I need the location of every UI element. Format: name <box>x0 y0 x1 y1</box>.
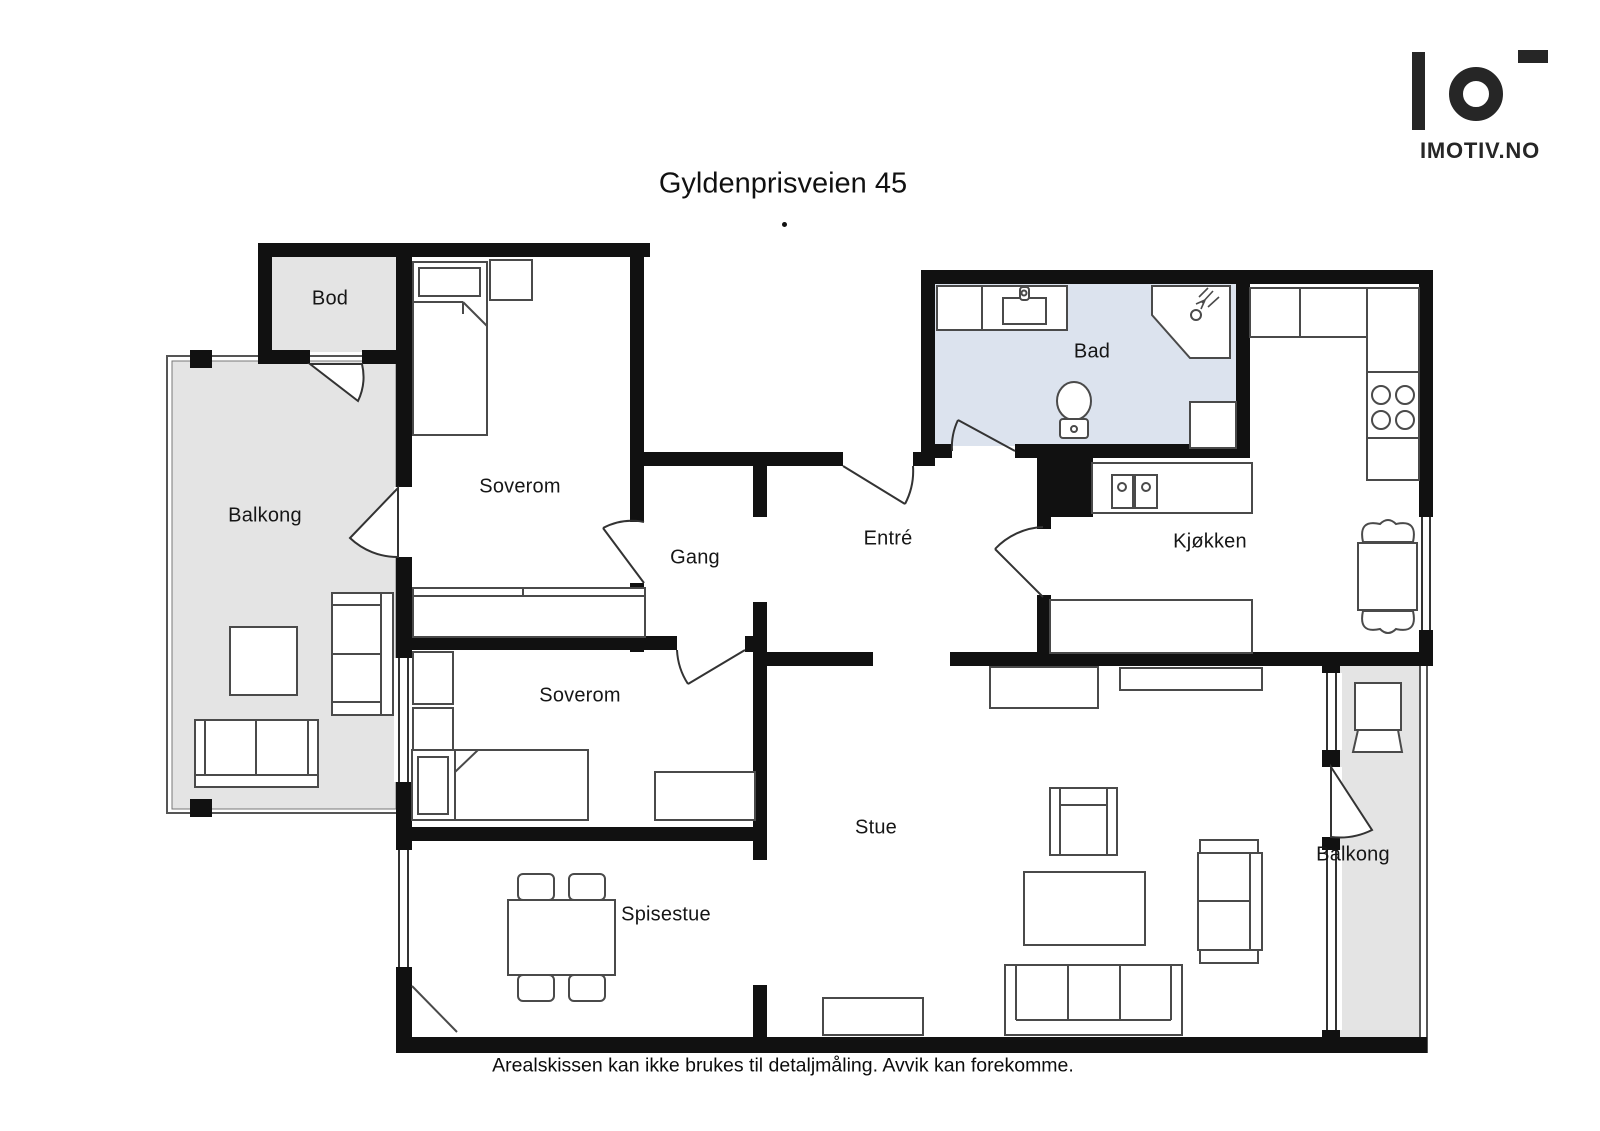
nightstand-icon <box>413 708 453 750</box>
balcony-post <box>190 799 212 817</box>
door-swing-icon <box>995 527 1043 597</box>
title-dot-marker <box>782 222 787 227</box>
desk-icon <box>655 772 755 820</box>
room-label-soverom-2: Soverom <box>539 685 620 708</box>
nightstand-icon <box>413 652 453 704</box>
pillow-icon <box>419 268 480 296</box>
balcony-sofa-icon <box>332 593 393 715</box>
window-icon <box>394 850 414 967</box>
balcony-right-railing <box>1420 652 1427 1053</box>
window-icon <box>1417 517 1435 630</box>
room-label-bad: Bad <box>1074 341 1110 364</box>
room-label-soverom-1: Soverom <box>479 476 560 499</box>
balcony-chair-icon <box>1353 683 1402 752</box>
pillow-icon <box>418 757 448 814</box>
chair-icon <box>569 975 605 1001</box>
room-label-balkong-left: Balkong <box>228 505 302 528</box>
coffee-table-icon <box>1024 872 1145 945</box>
kitchen-table-icon <box>1358 543 1417 610</box>
bathroom-sink-icon <box>937 286 1067 330</box>
chair-icon <box>1362 520 1414 542</box>
chair-icon <box>518 975 554 1001</box>
loveseat-icon <box>1198 840 1262 963</box>
bed-icon <box>413 262 487 435</box>
toilet-icon <box>1057 382 1091 438</box>
imotiv-logo: IMOTIV.NO <box>1408 46 1552 172</box>
room-label-kjokken: Kjøkken <box>1173 531 1247 554</box>
chair-icon <box>518 874 554 900</box>
bathroom-cabinet-icon <box>1190 402 1236 448</box>
floor-plan-page: { "title": "Gyldenprisveien 45", "discla… <box>0 0 1600 1131</box>
room-label-stue: Stue <box>855 817 897 840</box>
sideboard-icon <box>1120 668 1262 690</box>
imotiv-logo-icon <box>1408 46 1552 146</box>
bed-icon <box>412 750 588 820</box>
kitchen-sink-icon <box>1092 463 1252 513</box>
balcony-sofa-icon <box>195 720 318 787</box>
counter-icon <box>1367 288 1419 480</box>
door-swing-icon <box>677 650 745 684</box>
imotiv-logo-text: IMOTIV.NO <box>1408 138 1552 164</box>
door-swing-icon <box>843 466 913 504</box>
sideboard-icon <box>990 667 1098 708</box>
window-icon <box>1320 673 1342 750</box>
page-title: Gyldenprisveien 45 <box>659 168 907 201</box>
disclaimer-text: Arealskissen kan ikke brukes til detaljm… <box>492 1055 1074 1078</box>
balcony-table-icon <box>230 627 297 695</box>
chair-icon <box>569 874 605 900</box>
door-swing-icon <box>603 521 644 583</box>
room-label-balkong-right: Balkong <box>1316 844 1390 867</box>
balcony-post <box>190 350 212 368</box>
window-icon <box>1320 850 1342 1030</box>
room-label-bod: Bod <box>312 288 348 311</box>
armchair-icon <box>1050 788 1117 855</box>
room-label-spisestue: Spisestue <box>621 904 711 927</box>
dining-table-icon <box>508 900 615 975</box>
wardrobe-icon <box>413 588 645 637</box>
dining-set-icon <box>508 874 615 1001</box>
counter-icon <box>1050 600 1252 653</box>
nightstand-icon <box>490 260 532 300</box>
sofa-icon <box>1005 965 1182 1035</box>
room-label-gang: Gang <box>670 547 720 570</box>
room-label-entre: Entré <box>864 528 913 551</box>
corner-chamfer <box>412 986 457 1032</box>
chair-icon <box>1362 611 1414 633</box>
tv-bench-icon <box>823 998 923 1035</box>
